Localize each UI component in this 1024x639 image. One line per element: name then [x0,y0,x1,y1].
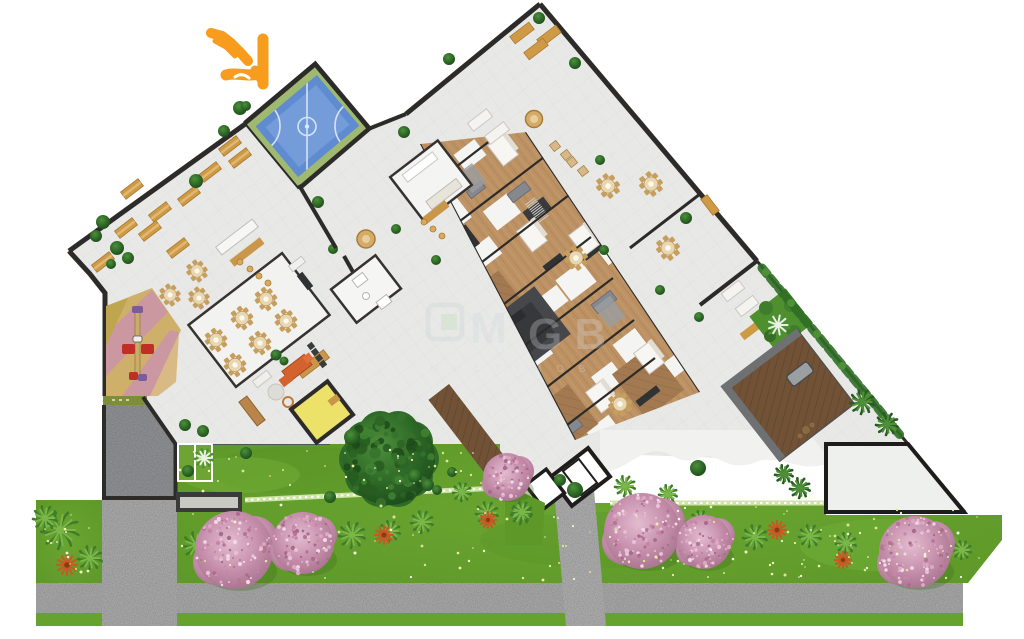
svg-text:M: M [470,304,507,353]
svg-text:G B: G B [528,310,606,359]
svg-text:M U L T I M O B: M U L T I M O B [430,364,592,375]
